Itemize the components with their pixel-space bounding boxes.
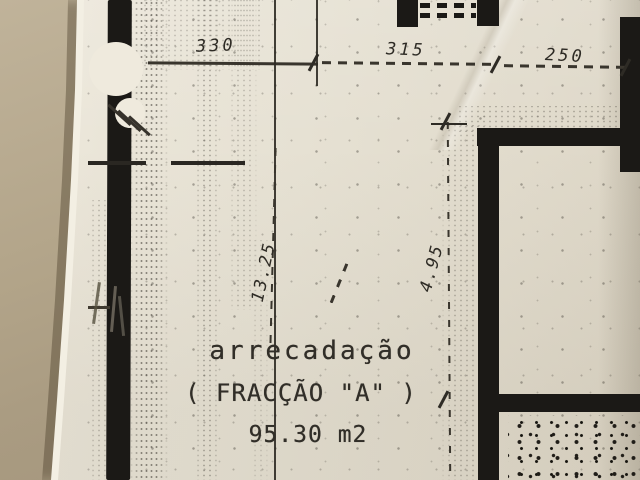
dim-label-330: 330 <box>196 35 236 56</box>
wall-right-edge <box>620 17 640 172</box>
room-fraction-label: ( FRACÇÃO "A" ) <box>181 379 421 407</box>
dim-label-250: 250 <box>545 45 586 67</box>
stippled-ground-area <box>508 415 640 480</box>
room-name-label: arrecadação <box>201 336 423 366</box>
toner-band <box>193 0 221 480</box>
window-symbol-dashes <box>420 3 476 8</box>
window-symbol-left-jamb <box>397 0 418 27</box>
window-symbol-right-jamb <box>477 0 499 26</box>
wall-horizontal-upper <box>477 128 640 146</box>
wall-vertical-right-room <box>478 128 499 480</box>
wall-line-horizontal <box>171 161 245 165</box>
toner-band <box>140 0 260 70</box>
wall-horizontal-lower <box>496 394 640 412</box>
photo-of-floor-plan: 330 315 250 13.25 4.95 arrecadação ( FRA… <box>0 0 640 480</box>
dim-label-315: 315 <box>386 39 426 60</box>
scribble-mark <box>88 306 110 309</box>
wall-white-blob <box>89 42 143 96</box>
blueprint-paper: 330 315 250 13.25 4.95 arrecadação ( FRA… <box>0 0 640 480</box>
dim-extension-line <box>431 123 467 125</box>
window-symbol-dashes <box>420 13 476 18</box>
wall-line-horizontal <box>88 161 146 165</box>
grid-line-vertical-short <box>316 0 318 86</box>
room-area-label: 95.30 m2 <box>238 422 378 448</box>
